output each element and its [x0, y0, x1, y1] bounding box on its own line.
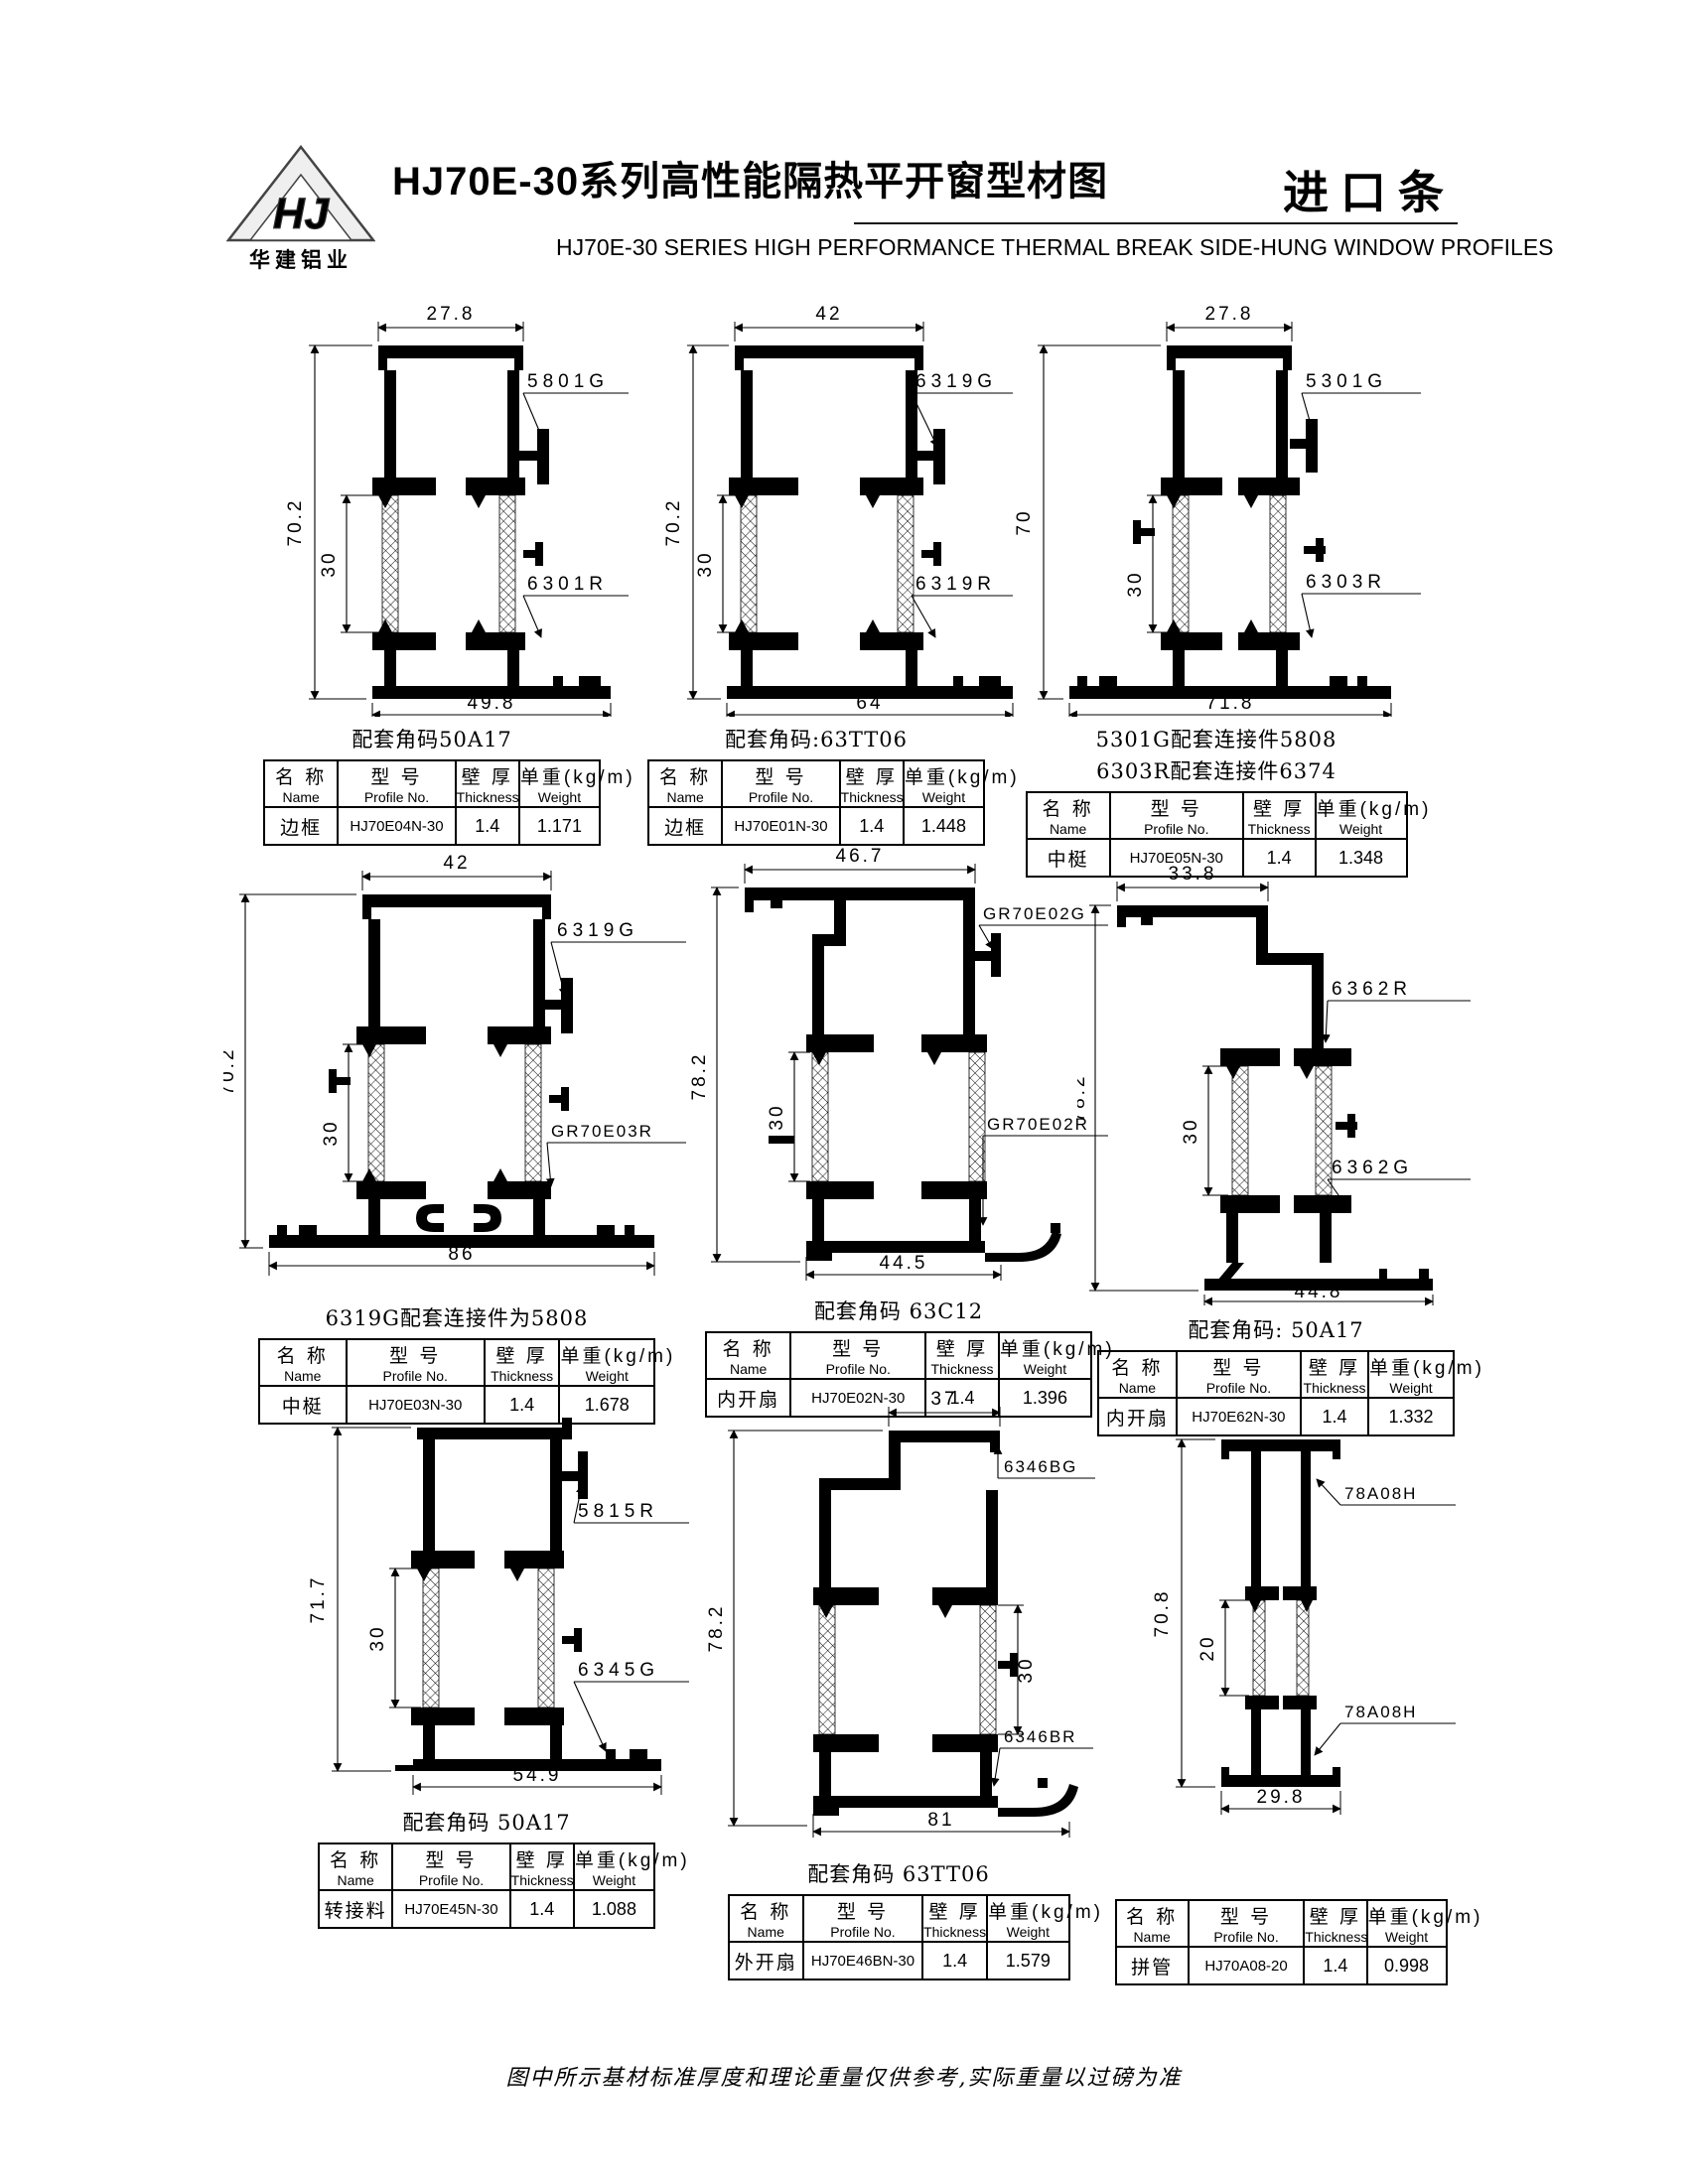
- part-label-text: 78A08H: [1344, 1484, 1417, 1503]
- dimension-overall: 70.2: [285, 345, 372, 699]
- col-header-name: 名 称Name: [319, 1843, 392, 1890]
- dimension-top: 42: [362, 853, 551, 890]
- part-label-upper: 6319G: [912, 371, 1013, 447]
- accessory-caption: 配套角码 50A17: [278, 1807, 695, 1837]
- thermal-break-strip: [1270, 495, 1286, 632]
- profile-drawing-5: 46.7 78.2 30 44.5 GR70E02G GR70E02R: [685, 832, 1112, 1289]
- profile-drawing-2: 42 70.2 30 64 6319G 6319R: [618, 290, 1015, 717]
- profile-drawing-9: 70.8 20 29.8 78A08H 78A08H: [1102, 1390, 1460, 1866]
- dimension-inner: 20: [1197, 1600, 1249, 1696]
- part-label-upper: 5815R: [574, 1485, 689, 1523]
- profile-name: 外开扇: [729, 1942, 803, 1979]
- profile-cell-6: 33.8 78.2 30 44.8 6362R 6362G 配套角码: 50A1…: [1077, 846, 1475, 1436]
- profile-cross-section: [1069, 345, 1391, 699]
- page-subtitle: HJ70E-30 SERIES HIGH PERFORMANCE THERMAL…: [556, 234, 1489, 261]
- dimension-top: 27.8: [1167, 304, 1292, 341]
- dim-top-value: 37: [930, 1389, 957, 1410]
- profile-cell-8: 37 78.2 30 81 6346BG 6346BR 配套角码 63TT06 …: [700, 1385, 1097, 1980]
- profile-drawing-3: 27.8 70 30 71.8 5301G 6303R: [1008, 290, 1425, 717]
- thermal-break-strip: [812, 1052, 828, 1181]
- accessory-caption: 6319G配套连接件为5808: [223, 1302, 690, 1332]
- part-label-lower: 6346BR: [994, 1727, 1093, 1786]
- part-label-text: GR70E03R: [551, 1122, 653, 1141]
- col-header-model: 型 号Profile No.: [1189, 1900, 1305, 1947]
- thermal-break-strip: [1173, 495, 1189, 632]
- logo-company-name: 华建铝业: [216, 244, 385, 274]
- dimension-inner: 30: [767, 1052, 810, 1181]
- dim-top-value: 27.8: [427, 304, 476, 325]
- col-header-thickness: 壁 厚Thickness: [510, 1843, 574, 1890]
- col-header-weight: 单重(kg/m)Weight: [904, 760, 984, 807]
- col-header-model: 型 号Profile No.: [803, 1895, 922, 1942]
- part-label-text: 6346BG: [1004, 1457, 1077, 1476]
- profile-cross-section: [269, 894, 654, 1248]
- part-label-upper: 78A08H: [1317, 1479, 1456, 1505]
- thermal-break-strip: [898, 495, 914, 632]
- dim-inner-value: 30: [319, 550, 340, 577]
- dim-bottom-value: 64: [856, 693, 883, 714]
- part-label-upper: 5301G: [1302, 371, 1421, 435]
- col-header-name: 名 称Name: [729, 1895, 803, 1942]
- thermal-break-strip: [368, 1044, 384, 1181]
- thermal-break-strip: [1253, 1600, 1265, 1696]
- part-label-text: 5801G: [527, 371, 609, 392]
- dim-overall-value: 78.2: [689, 1052, 710, 1101]
- col-header-weight: 单重(kg/m)Weight: [1367, 1900, 1447, 1947]
- profile-cell-3: 27.8 70 30 71.8 5301G 6303R 5301G配套连接件58…: [1008, 290, 1425, 878]
- profile-drawing-4: 42 70.2 30 86 6319G GR70E03R: [223, 839, 690, 1296]
- dim-inner-value: 20: [1197, 1634, 1218, 1661]
- profile-cross-section: [1117, 905, 1433, 1291]
- dim-overall-value: 70.8: [1152, 1589, 1173, 1638]
- spec-table-9: 名 称Name 型 号Profile No. 壁 厚Thickness 单重(k…: [1115, 1899, 1448, 1985]
- col-header-model: 型 号Profile No.: [790, 1332, 925, 1379]
- dimension-top: 46.7: [745, 846, 975, 884]
- col-header-model: 型 号Profile No.: [722, 760, 839, 807]
- profile-no: HJ70E46BN-30: [803, 1942, 922, 1979]
- thermal-break-strip: [741, 495, 757, 632]
- dimension-overall: 78.2: [689, 887, 800, 1262]
- dimension-top: 27.8: [378, 304, 523, 341]
- dim-overall-value: 70.2: [223, 1047, 238, 1096]
- part-label-text: 5301G: [1306, 371, 1387, 392]
- company-logo: HJ: [226, 145, 375, 242]
- thickness-value: 1.4: [922, 1942, 987, 1979]
- dimension-top: 37: [889, 1389, 1000, 1427]
- thermal-break-strip: [499, 495, 515, 632]
- part-label-upper: 6362R: [1326, 979, 1471, 1042]
- dimension-bottom: 86: [269, 1244, 654, 1276]
- part-label-text: GR70E02R: [987, 1115, 1089, 1134]
- dimension-inner: 30: [1125, 495, 1171, 632]
- weight-value: 0.998: [1367, 1947, 1447, 1984]
- dim-inner-value: 30: [367, 1624, 388, 1651]
- thermal-break-strip: [423, 1569, 439, 1707]
- part-label-lower: 6345G: [574, 1660, 689, 1751]
- profile-cell-9: 70.8 20 29.8 78A08H 78A08H 名 称Name 型 号Pr…: [1102, 1390, 1460, 1985]
- dim-bottom-value: 44.8: [1295, 1282, 1343, 1302]
- thermal-break-strip: [1316, 1066, 1332, 1195]
- thickness-value: 1.4: [510, 1890, 574, 1928]
- col-header-thickness: 壁 厚Thickness: [1304, 1900, 1366, 1947]
- dim-inner-value: 30: [1125, 570, 1146, 597]
- col-header-weight: 单重(kg/m)Weight: [519, 760, 600, 807]
- dimension-inner: 30: [1181, 1066, 1228, 1195]
- col-header-weight: 单重(kg/m)Weight: [987, 1895, 1068, 1942]
- thermal-break-strip: [382, 495, 398, 632]
- part-label-text: 5815R: [578, 1501, 658, 1522]
- dimension-inner: 30: [998, 1605, 1037, 1734]
- part-label-upper: 6346BG: [998, 1446, 1095, 1478]
- weight-value: 1.088: [574, 1890, 654, 1928]
- accessory-caption: 配套角码50A17: [233, 724, 631, 753]
- dim-top-value: 27.8: [1205, 304, 1254, 325]
- thermal-break-strip: [538, 1569, 554, 1707]
- col-header-thickness: 壁 厚Thickness: [922, 1895, 987, 1942]
- part-label-text: 6319G: [915, 371, 997, 392]
- profile-drawing-1: 27.8 70.2 30 49.8 5801G 6301R: [233, 290, 631, 717]
- part-label-text: 6303R: [1306, 572, 1386, 593]
- col-header-model: 型 号Profile No.: [1110, 792, 1243, 839]
- part-label-text: 6362G: [1332, 1158, 1413, 1178]
- col-header-weight: 单重(kg/m)Weight: [574, 1843, 654, 1890]
- spec-table-1: 名 称Name 型 号Profile No. 壁 厚Thickness 单重(k…: [263, 759, 601, 846]
- part-label-text: GR70E02G: [983, 904, 1086, 923]
- profile-cell-7: 71.7 30 54.9 5815R 6345G 配套角码 50A17 名 称N…: [278, 1388, 695, 1929]
- col-header-name: 名 称Name: [264, 760, 338, 807]
- dimension-inner: 30: [367, 1569, 421, 1707]
- col-header-model: 型 号Profile No.: [392, 1843, 509, 1890]
- profile-cross-section: [727, 345, 1013, 699]
- profile-cell-4: 42 70.2 30 86 6319G GR70E03R 6319G配套连接件为…: [223, 839, 690, 1425]
- dim-overall-value: 70.2: [663, 498, 684, 547]
- dim-bottom-value: 86: [448, 1244, 475, 1265]
- col-header-name: 名 称Name: [706, 1332, 790, 1379]
- part-label-text: 6345G: [578, 1660, 659, 1681]
- thermal-break-strip: [1297, 1600, 1309, 1696]
- part-label-text: 6346BR: [1004, 1727, 1076, 1746]
- dim-bottom-value: 54.9: [513, 1765, 562, 1786]
- part-label-text: 6319R: [915, 574, 996, 595]
- dim-top-value: 42: [815, 304, 842, 325]
- dimension-inner: 30: [321, 1044, 366, 1181]
- profile-name: 转接料: [319, 1890, 392, 1928]
- dimension-bottom: 29.8: [1221, 1787, 1340, 1815]
- thickness-value: 1.4: [1304, 1947, 1366, 1984]
- col-header-thickness: 壁 厚Thickness: [925, 1332, 999, 1379]
- dim-overall-value: 70: [1014, 508, 1035, 535]
- col-header-name: 名 称Name: [648, 760, 722, 807]
- col-header-thickness: 壁 厚Thickness: [456, 760, 519, 807]
- dim-bottom-value: 49.8: [468, 693, 516, 714]
- dim-overall-value: 78.2: [1077, 1074, 1089, 1123]
- dim-top-value: 46.7: [836, 846, 885, 867]
- dimension-top: 42: [735, 304, 923, 341]
- dim-top-value: 33.8: [1169, 864, 1217, 885]
- spec-table-8: 名 称Name 型 号Profile No. 壁 厚Thickness 单重(k…: [728, 1894, 1070, 1980]
- dim-inner-value: 30: [321, 1119, 342, 1146]
- dim-bottom-value: 71.8: [1206, 693, 1255, 714]
- header-rule: [854, 222, 1458, 224]
- accessory-caption-2: 6303R配套连接件6374: [1008, 755, 1425, 785]
- dim-bottom-value: 44.5: [880, 1253, 928, 1274]
- part-label-lower: 6301R: [523, 574, 629, 637]
- part-label-text: 78A08H: [1344, 1703, 1417, 1721]
- profile-cell-5: 46.7 78.2 30 44.5 GR70E02G GR70E02R 配套角码…: [685, 832, 1112, 1418]
- dim-top-value: 42: [443, 853, 470, 874]
- dimension-top: 33.8: [1117, 864, 1268, 901]
- import-strip-stamp: 进口条: [1283, 157, 1456, 222]
- accessory-caption: 配套角码 63TT06: [700, 1858, 1097, 1888]
- profile-cell-2: 42 70.2 30 64 6319G 6319R 配套角码:63TT06 名 …: [618, 290, 1015, 846]
- dim-inner-value: 30: [1016, 1656, 1037, 1683]
- accessory-caption: 配套角码:63TT06: [618, 724, 1015, 753]
- dim-overall-value: 78.2: [706, 1604, 727, 1653]
- col-header-model: 型 号Profile No.: [347, 1339, 485, 1386]
- dim-inner-value: 30: [695, 550, 716, 577]
- part-label-text: 6362R: [1332, 979, 1412, 1000]
- dim-bottom-value: 81: [927, 1810, 954, 1831]
- profile-cross-section: [745, 887, 1061, 1262]
- col-header-name: 名 称Name: [259, 1339, 347, 1386]
- accessory-caption: 配套角码: 50A17: [1077, 1314, 1475, 1344]
- profile-drawing-8: 37 78.2 30 81 6346BG 6346BR: [700, 1385, 1097, 1851]
- accessory-caption: 配套角码 63C12: [685, 1296, 1112, 1325]
- catalog-page: HJ 华建铝业 HJ70E-30系列高性能隔热平开窗型材图 进口条 HJ70E-…: [0, 0, 1688, 2184]
- thermal-break-strip: [819, 1605, 835, 1734]
- logo-monogram: HJ: [273, 190, 331, 238]
- col-header-model: 型 号Profile No.: [338, 760, 455, 807]
- dimension-overall: 78.2: [1077, 905, 1198, 1291]
- dimension-inner: 30: [695, 495, 739, 632]
- dimension-inner: 30: [319, 495, 380, 632]
- part-label-lower: GR70E03R: [547, 1122, 686, 1186]
- col-header-name: 名 称Name: [1116, 1900, 1189, 1947]
- profile-cross-section: [813, 1431, 1078, 1817]
- dim-inner-value: 30: [1181, 1117, 1201, 1144]
- part-label-lower: 6319R: [912, 574, 1013, 637]
- col-header-weight: 单重(kg/m)Weight: [559, 1339, 654, 1386]
- thermal-break-strip: [525, 1044, 541, 1181]
- dim-overall-value: 71.7: [308, 1575, 329, 1624]
- part-label-text: 6319G: [557, 920, 638, 941]
- accessory-caption: 5301G配套连接件5808: [1008, 724, 1425, 753]
- part-label-lower: 6303R: [1302, 572, 1421, 637]
- part-label-text: 6301R: [527, 574, 608, 595]
- profile-no: HJ70A08-20: [1189, 1947, 1305, 1984]
- dimension-overall: 70.2: [663, 345, 729, 699]
- profile-drawing-7: 71.7 30 54.9 5815R 6345G: [278, 1388, 695, 1800]
- col-header-thickness: 壁 厚Thickness: [485, 1339, 560, 1386]
- col-header-weight: 单重(kg/m)Weight: [1316, 792, 1407, 839]
- profile-drawing-6: 33.8 78.2 30 44.8 6362R 6362G: [1077, 846, 1475, 1307]
- profile-no: HJ70E45N-30: [392, 1890, 509, 1928]
- thermal-break-strip: [1232, 1066, 1248, 1195]
- dimension-overall: 70.8: [1152, 1439, 1215, 1787]
- dimension-bottom: 44.5: [806, 1253, 1001, 1281]
- thermal-break-strip: [980, 1605, 996, 1734]
- dim-overall-value: 70.2: [285, 498, 306, 547]
- part-label-lower: 78A08H: [1315, 1703, 1456, 1755]
- profile-cell-1: 27.8 70.2 30 49.8 5801G 6301R 配套角码50A17 …: [233, 290, 631, 846]
- profile-cross-section: [1221, 1439, 1340, 1787]
- spec-table-7: 名 称Name 型 号Profile No. 壁 厚Thickness 单重(k…: [318, 1843, 655, 1929]
- profile-name: 拼管: [1116, 1947, 1189, 1984]
- col-header-thickness: 壁 厚Thickness: [840, 760, 904, 807]
- page-title: HJ70E-30系列高性能隔热平开窗型材图: [392, 149, 1108, 206]
- dim-inner-value: 30: [767, 1103, 787, 1130]
- profile-cross-section: [372, 345, 611, 699]
- dim-bottom-value: 29.8: [1257, 1787, 1306, 1808]
- col-header-thickness: 壁 厚Thickness: [1243, 792, 1316, 839]
- footer-disclaimer: 图中所示基材标准厚度和理论重量仅供参考,实际重量以过磅为准: [0, 2060, 1688, 2092]
- weight-value: 1.579: [987, 1942, 1068, 1979]
